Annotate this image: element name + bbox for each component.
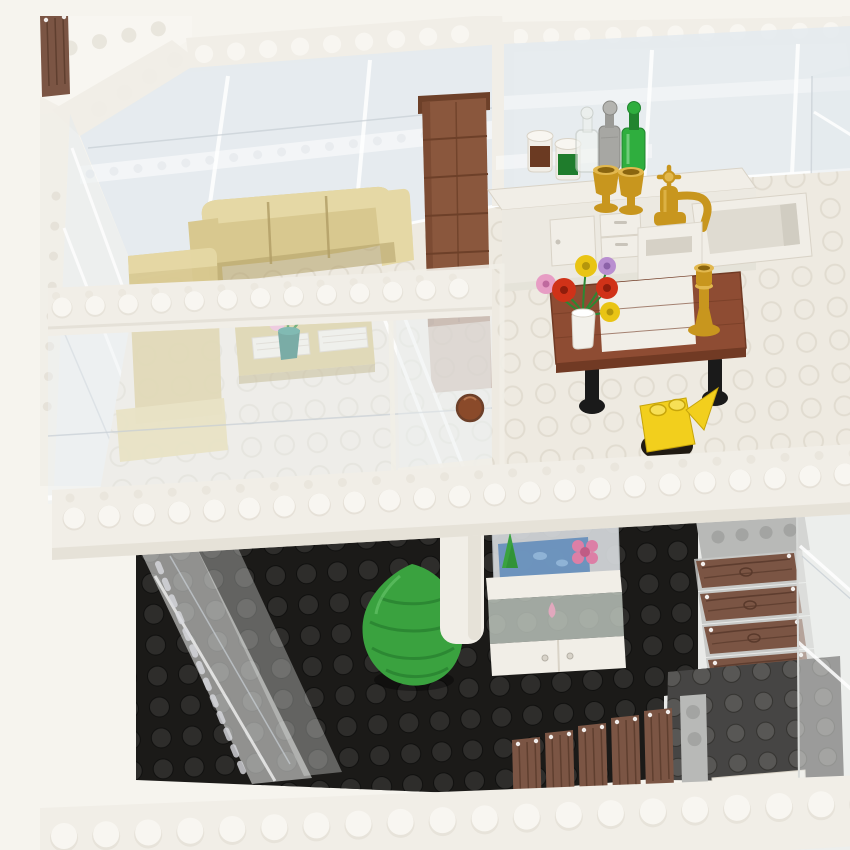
door-knob bbox=[457, 395, 483, 421]
glass-wall-right-ground bbox=[796, 488, 850, 786]
aquarium-cabinet bbox=[486, 518, 626, 676]
gold-goblet bbox=[618, 167, 644, 215]
jar-brown bbox=[527, 131, 553, 173]
wood-plank bbox=[644, 708, 674, 792]
drawer bbox=[600, 212, 641, 237]
fish bbox=[556, 560, 568, 567]
wood-plank bbox=[40, 16, 70, 97]
cabinet-handle bbox=[567, 653, 573, 659]
lego-house-scene bbox=[40, 16, 850, 850]
gold-goblet bbox=[593, 165, 619, 213]
cabinet-glass-front bbox=[488, 592, 624, 644]
lego-house-photo: Photograph of a two-story LEGO modular h… bbox=[40, 16, 850, 850]
cabinet-handle bbox=[542, 655, 548, 661]
support-column bbox=[440, 520, 484, 644]
fish bbox=[533, 552, 547, 560]
drawer bbox=[601, 235, 642, 259]
